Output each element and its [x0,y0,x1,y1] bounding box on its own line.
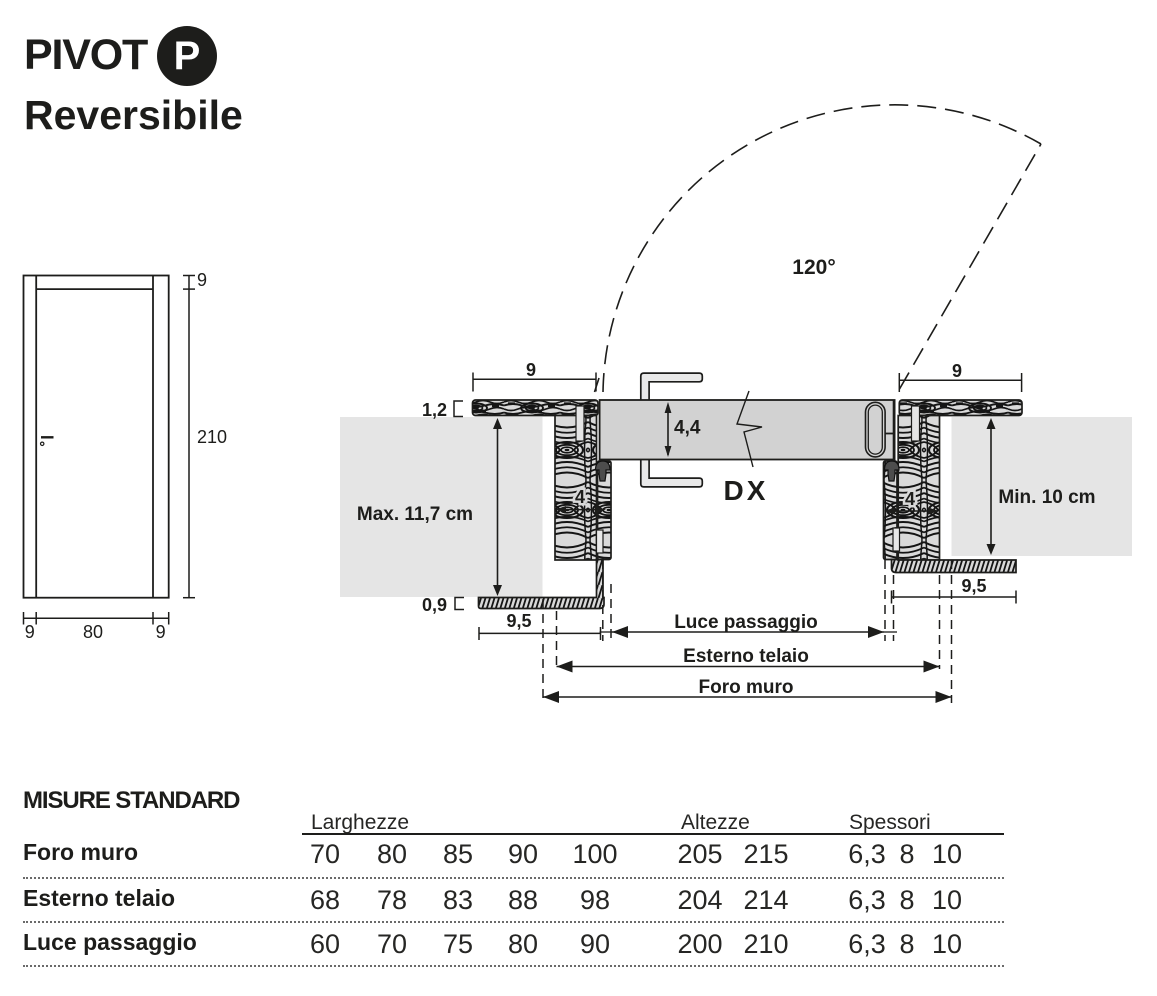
svg-text:1,2: 1,2 [422,400,447,420]
svg-text:80: 80 [83,622,103,642]
svg-text:4,4: 4,4 [674,418,701,439]
svg-text:9: 9 [952,361,962,381]
svg-text:4: 4 [905,489,915,509]
svg-text:120°: 120° [792,256,835,279]
svg-text:9,5: 9,5 [506,611,531,631]
svg-text:0,9: 0,9 [422,595,447,615]
svg-text:9: 9 [197,270,207,290]
svg-text:DX: DX [724,475,769,506]
svg-text:Foro muro: Foro muro [699,677,794,698]
svg-text:Luce passaggio: Luce passaggio [674,612,818,633]
svg-text:Max. 11,7 cm: Max. 11,7 cm [357,504,473,525]
svg-text:4: 4 [575,487,585,507]
svg-text:9: 9 [526,360,536,380]
svg-text:9: 9 [156,622,166,642]
svg-text:9,5: 9,5 [961,576,986,596]
svg-text:210: 210 [197,427,227,447]
svg-text:9: 9 [25,622,35,642]
svg-text:Esterno telaio: Esterno telaio [683,646,809,667]
svg-text:Min. 10 cm: Min. 10 cm [998,487,1095,508]
